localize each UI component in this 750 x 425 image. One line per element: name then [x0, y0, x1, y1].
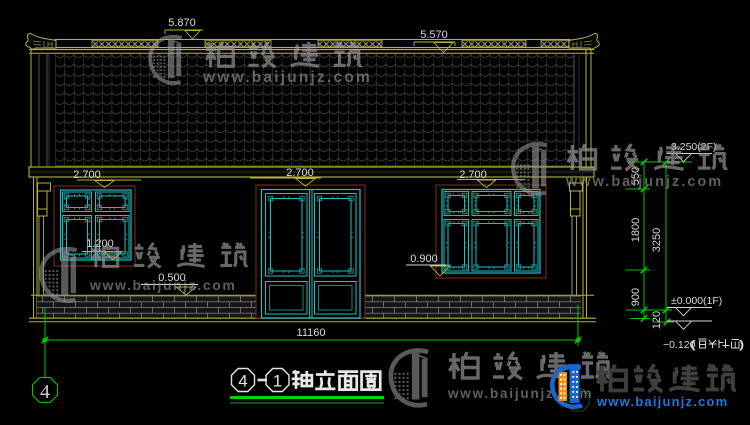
svg-text:(: (: [691, 339, 695, 351]
svg-text:www.baijunjz.com: www.baijunjz.com: [89, 277, 236, 293]
svg-text:4: 4: [40, 381, 50, 403]
svg-text:4: 4: [238, 372, 247, 391]
svg-text:±0.000(1F): ±0.000(1F): [671, 295, 722, 307]
svg-text:): ): [740, 339, 744, 351]
svg-text:0.900: 0.900: [410, 253, 438, 265]
svg-text:2.700: 2.700: [286, 167, 314, 179]
svg-text:5.870: 5.870: [168, 17, 196, 29]
svg-text:2.700: 2.700: [73, 169, 101, 181]
svg-text:3250: 3250: [651, 228, 663, 252]
svg-text:900: 900: [630, 288, 642, 306]
svg-text:120: 120: [651, 311, 663, 329]
svg-text:11160: 11160: [297, 327, 326, 339]
svg-text:www.baijunjz.com: www.baijunjz.com: [202, 69, 372, 86]
svg-text:1: 1: [273, 372, 282, 391]
svg-text:5.570: 5.570: [420, 29, 448, 41]
svg-text:1800: 1800: [630, 218, 642, 242]
svg-text:www.baijunjz.com: www.baijunjz.com: [596, 394, 728, 409]
svg-text:www.baijunjz.com: www.baijunjz.com: [565, 174, 723, 190]
